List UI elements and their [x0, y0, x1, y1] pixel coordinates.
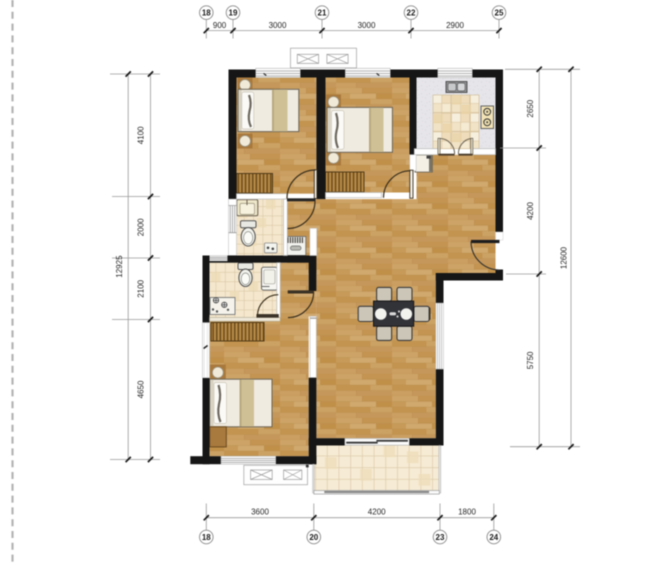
- svg-text:19: 19: [229, 8, 238, 17]
- svg-text:5750: 5750: [526, 351, 535, 369]
- svg-text:2650: 2650: [526, 99, 535, 117]
- svg-text:22: 22: [407, 8, 416, 17]
- svg-text:4650: 4650: [137, 380, 146, 398]
- svg-text:24: 24: [489, 533, 498, 542]
- svg-text:21: 21: [318, 8, 327, 17]
- svg-text:18: 18: [202, 8, 211, 17]
- svg-text:3600: 3600: [251, 508, 269, 517]
- svg-text:3000: 3000: [358, 21, 376, 30]
- svg-text:900: 900: [213, 21, 227, 30]
- svg-text:23: 23: [436, 533, 445, 542]
- svg-text:12925: 12925: [115, 255, 124, 278]
- svg-text:4200: 4200: [368, 508, 386, 517]
- svg-text:2900: 2900: [446, 21, 464, 30]
- svg-text:4100: 4100: [137, 126, 146, 144]
- svg-text:2000: 2000: [137, 218, 146, 236]
- svg-text:18: 18: [202, 533, 211, 542]
- svg-text:1800: 1800: [458, 508, 476, 517]
- svg-text:25: 25: [495, 8, 504, 17]
- svg-text:2100: 2100: [137, 279, 146, 297]
- svg-text:20: 20: [309, 533, 318, 542]
- svg-text:4200: 4200: [526, 202, 535, 220]
- svg-text:3000: 3000: [269, 21, 287, 30]
- svg-text:12600: 12600: [560, 246, 569, 269]
